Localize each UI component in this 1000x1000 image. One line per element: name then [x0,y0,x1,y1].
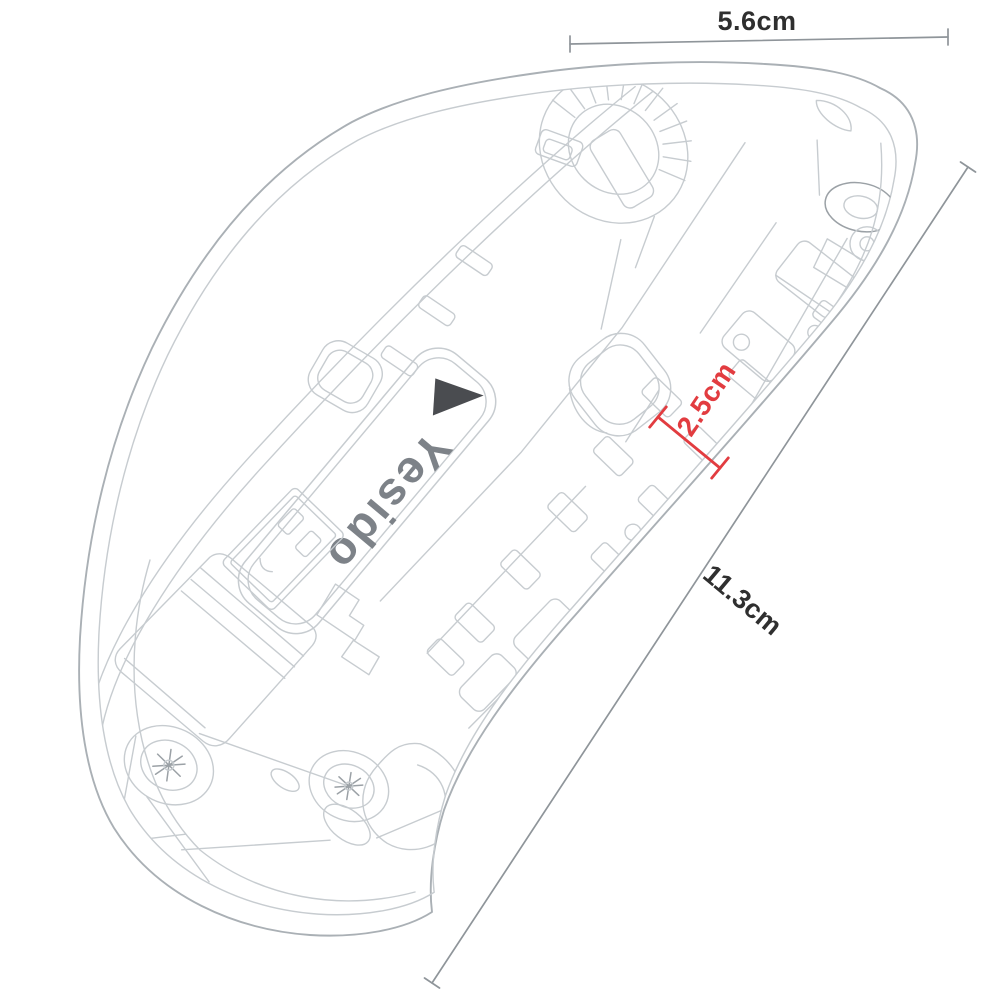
usb-body [109,541,325,758]
phillips-cross-icon [332,769,367,804]
logo-triangle-icon [416,365,484,433]
mouse-internals: Yesido [0,0,1000,1000]
brand-logo-text: Yesido [315,422,462,583]
height-dimension-label: 2.5cm [670,356,742,441]
width-dimension: 5.6cm [570,6,948,52]
mouse-inner-shell-outline [98,83,896,915]
screw-left [111,711,227,820]
side-seams [22,55,907,951]
length-dimension-label: 11.3cm [697,559,788,642]
length-dimension-line [432,167,968,983]
tail-rim-band [134,560,415,901]
width-dimension-line [570,37,948,44]
height-dimension: 2.5cm [650,356,742,478]
phillips-cross-icon [149,745,189,785]
length-dimension: 11.3cm [425,162,976,988]
screw-right [297,738,401,835]
sensor-housing [308,728,482,891]
mouse-sketch: Yesido [0,0,1000,1000]
mouse-dimension-diagram: Yesido [0,0,1000,1000]
button-dome [551,321,682,452]
width-dimension-label: 5.6cm [717,6,796,36]
mouse-outer-shell-outline [79,62,917,935]
tail-struts [73,657,364,948]
scroll-wheel [509,39,724,254]
figure-canvas: Yesido [0,0,1000,1000]
chassis-rail [293,141,901,760]
usb-contact-window [295,530,322,558]
